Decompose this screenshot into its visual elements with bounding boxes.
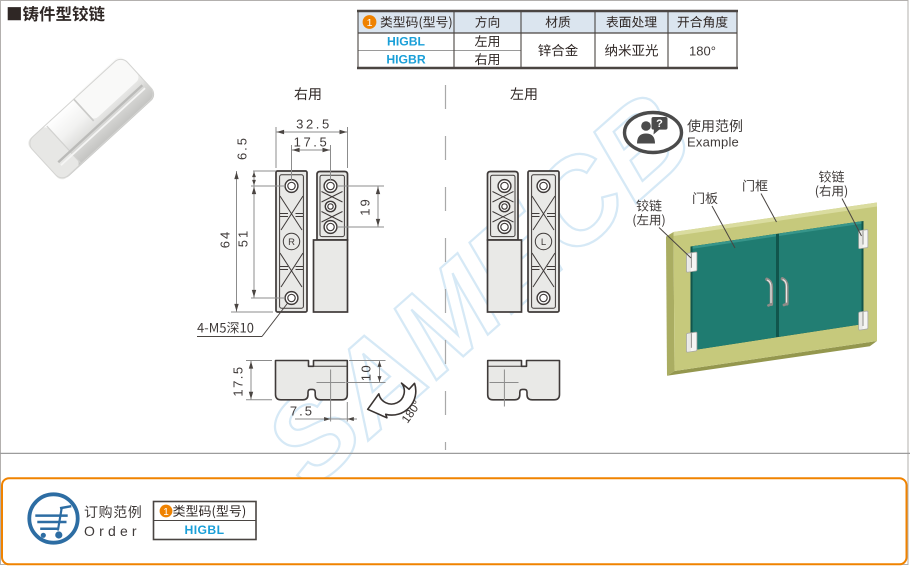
svg-text:6.5: 6.5 [235, 136, 250, 160]
svg-text:1: 1 [163, 507, 169, 518]
svg-text:19: 19 [358, 197, 373, 215]
svg-text:180°: 180° [689, 44, 716, 59]
svg-text:1: 1 [367, 17, 373, 29]
svg-text:17.5: 17.5 [294, 134, 330, 149]
svg-text:Example: Example [687, 135, 739, 150]
svg-text:32.5: 32.5 [296, 116, 332, 131]
svg-text:L: L [541, 237, 546, 248]
svg-text:51: 51 [236, 229, 251, 247]
svg-text:Order: Order [84, 523, 141, 539]
svg-text:17.5: 17.5 [231, 365, 246, 396]
svg-text:HIGBL: HIGBL [387, 34, 425, 48]
svg-text:7.5: 7.5 [290, 404, 314, 419]
svg-text:?: ? [656, 118, 663, 130]
svg-text:64: 64 [218, 230, 233, 248]
svg-text:R: R [288, 237, 295, 248]
svg-text:10: 10 [359, 364, 374, 381]
svg-text:HIGBL: HIGBL [185, 523, 225, 537]
svg-text:HIGBR: HIGBR [386, 52, 425, 66]
